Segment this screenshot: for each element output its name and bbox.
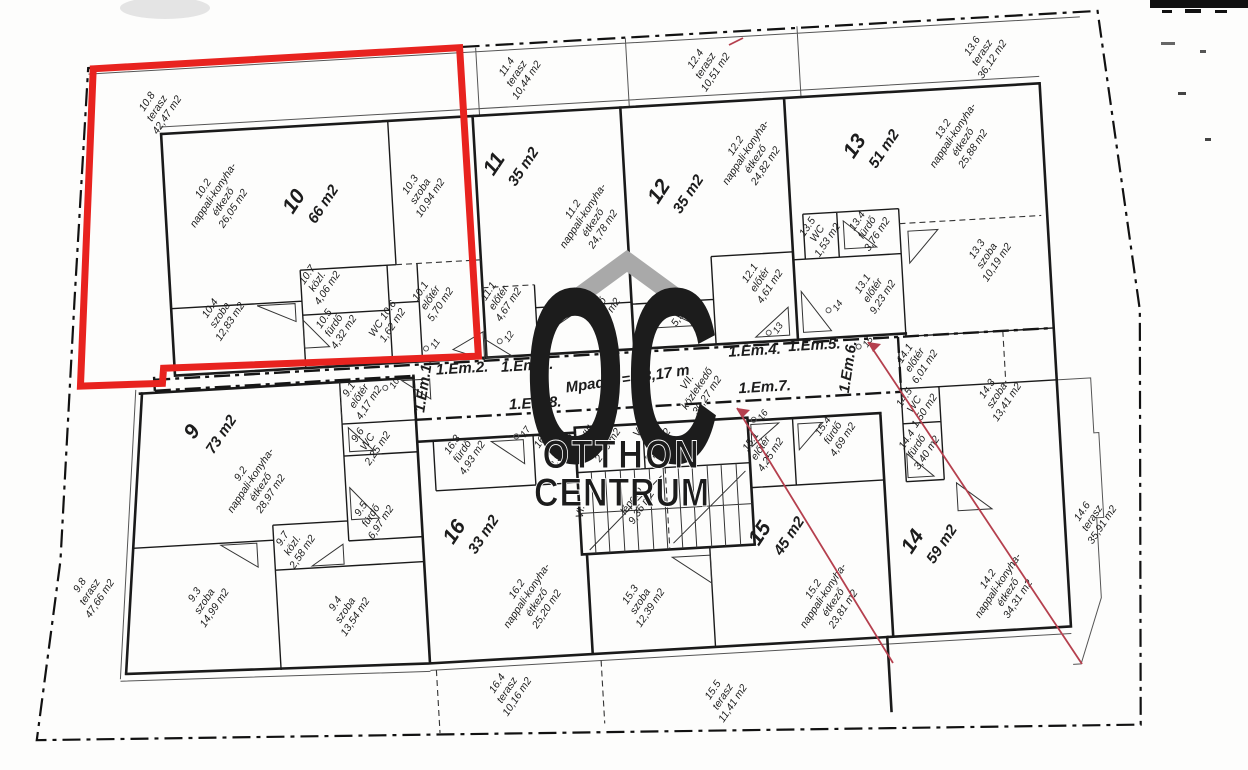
corridor-marker-1em7: 1.Em.7. [738, 377, 791, 397]
apartment-area: 59 m2 [923, 521, 961, 566]
apartment-number: 10 [278, 185, 310, 217]
floor-plan-canvas: 9 73 m2 9.1 előtér 4,17 m2 9.2 nappali-k… [0, 0, 1248, 770]
apartment-10-label: 10 66 m2 [278, 165, 343, 230]
room-label-9-4: 9.4 szoba 13,54 m2 [318, 582, 372, 639]
room-label-9-3: 9.3 szoba 14,99 m2 [178, 573, 232, 630]
door-number-14: 14 [825, 297, 846, 318]
scan-artifact [120, 0, 210, 19]
apartment-area: 33 m2 [465, 512, 503, 557]
scan-artifact [1178, 92, 1186, 95]
scan-artifact [1162, 10, 1172, 13]
door-number-13: 13 [765, 319, 786, 341]
scan-artifact [1185, 9, 1201, 13]
apartment-11-label: 11 35 m2 [479, 128, 543, 192]
room-label-14-6: 14.6 terasz 35,91 m2 [1065, 490, 1119, 547]
room-label-16-2: 16.2 nappali-konyha- étkező 25,20 m2 [491, 554, 573, 643]
room-label-10-3: 10.3 szoba 10,94 m2 [393, 163, 447, 220]
room-label-10-6: WC 10.6 1,62 m2 [366, 298, 409, 345]
room-label-10-8: 10.8 terasz 42,47 m2 [130, 80, 184, 137]
room-label-16-3: 16.3 fürdő 4,93 m2 [437, 425, 488, 477]
room-label-13-5: 13.5 WC 1,53 m2 [792, 208, 843, 260]
watermark-line2: CENTRUM [534, 469, 710, 514]
room-label-15-5: 15.5 terasz 11,41 m2 [696, 669, 750, 725]
room-label-12-1: 12.1 előtér 4,61 m2 [735, 254, 786, 306]
scan-artifact [1205, 138, 1211, 141]
room-label-10-5: 10.5 fürdő 4,32 m2 [308, 300, 359, 352]
svg-text:11: 11 [428, 337, 443, 351]
apartment-number: 16 [438, 516, 470, 548]
scan-artifact [1150, 0, 1248, 8]
apartment-area: 45 m2 [770, 513, 809, 559]
apartment-number: 12 [643, 175, 675, 207]
apartment-area: 35 m2 [670, 171, 708, 216]
room-label-12-4: 12.4 terasz 10,51 m2 [679, 37, 733, 94]
room-label-13-1: 13.1 előtér 9,23 m2 [847, 265, 898, 317]
room-label-15-3: 15.3 szoba 12,39 m2 [613, 573, 667, 630]
room-label-9-5: 9.5 fürdő 6,97 m2 [346, 490, 397, 542]
room-label-15-2: 15.2 nappali-konyha- étkező 23,81 m2 [788, 554, 870, 643]
floor-plan-page: 9 73 m2 9.1 előtér 4,17 m2 9.2 nappali-k… [0, 0, 1248, 770]
svg-text:1.Em.4.: 1.Em.4. [728, 341, 781, 361]
annotation-tick [729, 38, 743, 45]
highlight-apartment-10 [62, 48, 479, 388]
room-label-10-7: 10.7 közl. 4,06 m2 [292, 256, 343, 308]
corridor-marker-1em4: 1.Em.4. [728, 341, 781, 361]
corridor-marker-1em1: 1.Em.1. [411, 359, 436, 413]
room-label-14-3: 14.3 szoba 13,41 m2 [970, 367, 1024, 424]
svg-text:1.Em.5.: 1.Em.5. [788, 335, 841, 355]
room-label-10-2: 10.2 nappali-konyha- étkező 26,05 m2 [178, 154, 260, 243]
room-label-13-2: 13.2 nappali-konyha- étkező 25,88 m2 [917, 94, 999, 183]
room-label-12-2: 12.2 nappali-konyha- étkező 24,82 m2 [710, 111, 792, 200]
terrace-outline-top [88, 10, 1083, 138]
room-label-13-6: 13.6 terasz 36,12 m2 [955, 24, 1009, 81]
svg-text:1.Em.7.: 1.Em.7. [738, 377, 791, 397]
apartment-16-label: 16 33 m2 [438, 496, 503, 561]
apartment-9-label: 9 73 m2 [178, 396, 240, 457]
room-label-9-8: 9.8 terasz 47,66 m2 [63, 564, 117, 621]
room-label-10-1: 10.1 előtér 5,70 m2 [405, 272, 456, 324]
apartment-number: 11 [479, 149, 510, 180]
scan-artifact [1200, 50, 1206, 53]
apartment-area: 51 m2 [865, 126, 903, 171]
svg-text:13: 13 [771, 320, 786, 335]
door-number-11: 11 [423, 336, 443, 357]
apartment-14-label: 14 59 m2 [897, 505, 962, 570]
apartment-13-label: 13 51 m2 [839, 110, 904, 175]
svg-text:1.Em.1.: 1.Em.1. [411, 359, 436, 413]
room-label-10-4: 10.4 szoba 12,83 m2 [193, 287, 247, 344]
apartment-area: 66 m2 [305, 181, 343, 226]
apartment-area: 73 m2 [203, 412, 241, 457]
apartment-12-label: 12 35 m2 [643, 155, 708, 220]
room-label-9-2: 9.2 nappali-konyha- étkező 28,97 m2 [215, 439, 297, 528]
room-label-11-4: 11.4 terasz 10,44 m2 [490, 45, 544, 102]
watermark: OC OTTHON CENTRUM [525, 237, 720, 516]
corridor-marker-1em2: 1.Em.2. [435, 359, 488, 379]
apartment-number: 9 [179, 420, 205, 443]
room-label-16-4: 16.4 terasz 10,16 m2 [480, 662, 534, 719]
apartment-number: 13 [839, 130, 871, 162]
corridor-marker-1em5: 1.Em.5. [788, 335, 841, 355]
apartment-number: 14 [897, 525, 929, 557]
room-label-13-3: 13.3 szoba 10,19 m2 [960, 228, 1014, 285]
svg-text:1.Em.2.: 1.Em.2. [435, 359, 488, 379]
door-number-12: 12 [496, 327, 517, 349]
svg-text:12: 12 [502, 329, 517, 344]
scan-artifact [1161, 42, 1175, 45]
apartment-area: 35 m2 [505, 144, 543, 189]
svg-text:14: 14 [831, 298, 846, 313]
scan-artifact [1215, 10, 1227, 13]
